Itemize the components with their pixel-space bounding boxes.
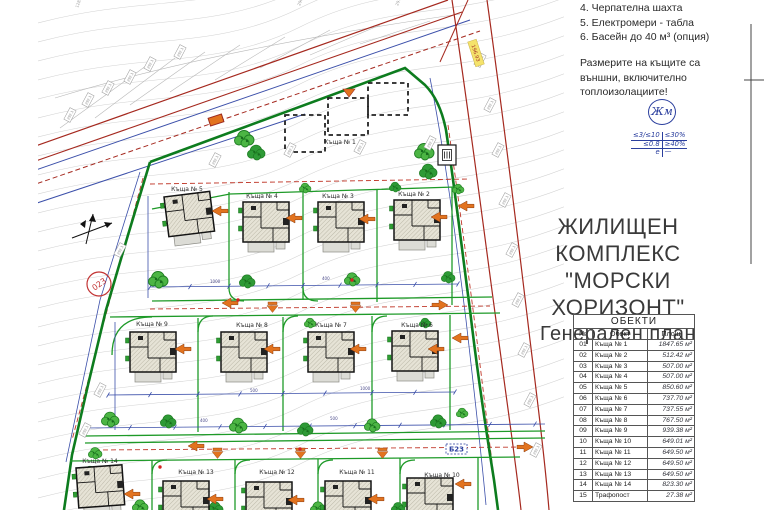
svg-text:291.1: 291.1 bbox=[394, 0, 403, 6]
tree-icon bbox=[132, 500, 148, 510]
dimensions-disclaimer: Размерите на къщите савъншни, включителн… bbox=[580, 56, 700, 100]
house-label: Къща № 5 bbox=[171, 186, 203, 193]
marker-hatched bbox=[208, 114, 224, 126]
table-row: 15Трафопост27.38 м² bbox=[574, 491, 695, 502]
tree-icon bbox=[364, 419, 380, 432]
objects-table: ОБЕКТИ№ОбектПлощ01Къща № 11847.65 м²02Къ… bbox=[573, 314, 695, 502]
svg-text:128.4: 128.4 bbox=[74, 0, 83, 8]
table-row: 14Къща № 14823.30 м² bbox=[574, 480, 695, 491]
survey-label-box: 292.1 bbox=[64, 108, 76, 123]
table-row: 03Къща № 3507.00 м² bbox=[574, 361, 695, 372]
note-item: 4. Черпателна шахта bbox=[580, 1, 709, 16]
house-footprint bbox=[126, 332, 177, 382]
house-label: Къща № 8 bbox=[236, 322, 268, 329]
section-label: Б23 bbox=[449, 446, 464, 454]
svg-text:1000: 1000 bbox=[360, 386, 371, 391]
svg-text:1000: 1000 bbox=[210, 279, 221, 284]
survey-label-box: 292.1 bbox=[530, 443, 542, 458]
entrance-arrow-icon bbox=[212, 206, 228, 216]
house-label: Къща № 9 bbox=[136, 321, 168, 328]
disclaimer-line: топлоизолациите! bbox=[580, 85, 700, 100]
transformer-station bbox=[438, 145, 456, 165]
objects-table-header: №ОбектПлощ bbox=[574, 329, 695, 340]
house-footprint bbox=[160, 191, 216, 247]
zoning-stamp-code: Жм bbox=[648, 99, 676, 125]
houses bbox=[72, 191, 453, 510]
survey-label-box: 292.1 bbox=[484, 98, 496, 113]
tree-icon bbox=[419, 164, 437, 179]
tree-icon bbox=[456, 408, 468, 418]
tree-icon bbox=[239, 275, 255, 288]
general-plan-sheet: 10004005001000400500292.1292.1292.1292.1… bbox=[0, 0, 764, 510]
edge-micro-labels: 128.4290.4291.1 bbox=[74, 0, 403, 8]
zoning-param-row: ≤3/≤10≤30% bbox=[631, 132, 687, 140]
tree-icon bbox=[149, 272, 169, 289]
house-footprint bbox=[314, 202, 365, 252]
house-label: Къща № 3 bbox=[322, 193, 354, 200]
table-row: 09Къща № 9939.38 м² bbox=[574, 426, 695, 437]
entrance-arrow-icon bbox=[455, 479, 471, 489]
house-footprint bbox=[321, 481, 372, 510]
road-elevation-label: 196.93 bbox=[468, 39, 485, 67]
survey-label-box: 292.1 bbox=[524, 393, 536, 408]
complex-type-title: ЖИЛИЩЕН КОМПЛЕКС bbox=[497, 213, 739, 267]
house-label: Къща № 10 bbox=[424, 472, 460, 479]
house-label: Къща № 1 bbox=[324, 139, 356, 146]
entrance-arrow-icon bbox=[175, 344, 191, 354]
house-label: Къща № 2 bbox=[398, 191, 430, 198]
entrance-arrow-icon bbox=[458, 201, 474, 211]
legend-notes-list: 4. Черпателна шахта5. Електромери - табл… bbox=[580, 1, 709, 45]
tree-icon bbox=[101, 412, 119, 427]
road-direction-arrow-icon bbox=[350, 302, 361, 313]
house-label: Къща № 13 bbox=[178, 469, 214, 476]
house-label: Къща № 6 bbox=[401, 322, 433, 329]
svg-text:500: 500 bbox=[330, 416, 338, 421]
survey-label-box: 292.1 bbox=[82, 93, 94, 108]
house-label: Къща № 12 bbox=[259, 469, 295, 476]
table-row: 01Къща № 11847.65 м² bbox=[574, 340, 695, 351]
tree-icon bbox=[229, 418, 247, 433]
house-footprint bbox=[242, 482, 293, 510]
road-direction-arrow-icon bbox=[432, 300, 448, 310]
table-row: 11Къща № 11649.50 м² bbox=[574, 447, 695, 458]
tree-icon bbox=[430, 415, 446, 428]
svg-text:400: 400 bbox=[200, 418, 208, 423]
svg-text:500: 500 bbox=[250, 388, 258, 393]
table-row: 07Къща № 7737.55 м² bbox=[574, 404, 695, 415]
survey-label-box: 292.1 bbox=[209, 153, 221, 168]
road-direction-arrow-icon bbox=[517, 442, 533, 452]
tree-icon bbox=[235, 131, 255, 148]
house-label: Къща № 7 bbox=[315, 322, 347, 329]
survey-label-box: 292.1 bbox=[102, 81, 114, 96]
road-direction-arrow-icon bbox=[377, 448, 388, 459]
table-row: 05Къща № 5850.60 м² bbox=[574, 383, 695, 394]
svg-text:400: 400 bbox=[322, 276, 330, 281]
house-label: Къща № 11 bbox=[339, 469, 375, 476]
entrance-arrow-icon bbox=[452, 333, 468, 343]
table-row: 10Къща № 10649.01 м² bbox=[574, 437, 695, 448]
objects-table-title: ОБЕКТИ bbox=[574, 315, 695, 329]
note-item: 5. Електромери - табла bbox=[580, 16, 709, 31]
plan-markers: 023Б23196.93 bbox=[72, 39, 484, 468]
road-direction-arrow-icon bbox=[267, 302, 278, 313]
house-footprint bbox=[239, 202, 290, 252]
zoning-param-row: е— bbox=[631, 149, 687, 157]
sheet-frame bbox=[744, 24, 764, 264]
disclaimer-line: Размерите на къщите са bbox=[580, 56, 700, 71]
table-row: 04Къща № 4507.00 м² bbox=[574, 372, 695, 383]
tree-icon bbox=[247, 145, 265, 160]
road-direction-arrow-icon bbox=[212, 448, 223, 459]
table-row: 02Къща № 2512.42 м² bbox=[574, 350, 695, 361]
house-footprint bbox=[159, 481, 210, 510]
house-footprint bbox=[403, 478, 454, 510]
house-footprint bbox=[72, 465, 126, 510]
house-footprint bbox=[217, 332, 268, 382]
table-row: 13Къща № 13649.50 м² bbox=[574, 469, 695, 480]
zone-number-label: 023 bbox=[90, 276, 108, 292]
house-footprint bbox=[304, 332, 355, 382]
table-row: 12Къща № 12649.50 м² bbox=[574, 458, 695, 469]
note-item: 6. Басейн до 40 м³ (опция) bbox=[580, 30, 709, 45]
house-footprint bbox=[390, 200, 441, 250]
complex-name-title: "МОРСКИ ХОРИЗОНТ" bbox=[497, 267, 739, 321]
house-label: Къща № 14 bbox=[82, 458, 118, 465]
table-row: 06Къща № 6737.70 м² bbox=[574, 393, 695, 404]
zoning-parameters-table: ≤3/≤10≤30%≤0.8≥40%е— bbox=[631, 132, 687, 157]
entrance-arrow-icon bbox=[124, 489, 140, 499]
disclaimer-line: външни, включително bbox=[580, 71, 700, 86]
tree-icon bbox=[299, 183, 311, 193]
house-label: Къща № 4 bbox=[246, 193, 278, 200]
tree-icon bbox=[160, 415, 176, 428]
survey-label-box: 292.1 bbox=[174, 45, 186, 60]
svg-text:290.4: 290.4 bbox=[296, 0, 305, 6]
table-row: 08Къща № 8767.50 м² bbox=[574, 415, 695, 426]
survey-label-box: 292.1 bbox=[144, 57, 156, 72]
house-footprint bbox=[388, 331, 439, 381]
